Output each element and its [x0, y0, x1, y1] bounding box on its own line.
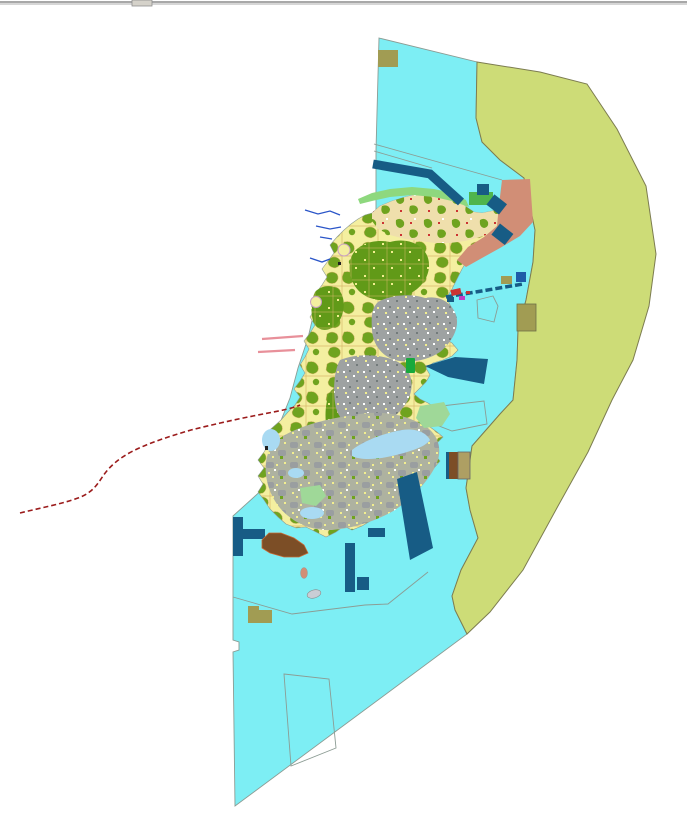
khaki-site-small	[501, 276, 512, 284]
royal-blue-square	[516, 272, 526, 282]
shallow-pool	[288, 468, 304, 478]
shallow-pool	[262, 429, 280, 451]
coast-mark	[338, 262, 341, 265]
coast-cove-outline	[338, 244, 350, 256]
khaki-site-north	[378, 50, 398, 67]
box-site-brown	[449, 452, 458, 479]
splitter-handle[interactable]	[132, 0, 152, 6]
map-canvas[interactable]	[0, 0, 687, 821]
south-pier	[345, 543, 355, 592]
magenta-marker	[459, 296, 465, 300]
coast-mark	[265, 446, 268, 450]
bright-green-parcel	[406, 358, 415, 373]
red-marker	[466, 291, 470, 294]
southwest-jetty-arm	[243, 529, 265, 539]
divider-line-light	[0, 3, 687, 5]
box-site-tan	[458, 452, 470, 479]
southwest-jetty	[233, 517, 243, 556]
south-navy-square	[357, 577, 369, 590]
map-viewport	[0, 0, 687, 821]
navy-marker	[447, 297, 454, 302]
coast-cove-outline	[311, 297, 322, 308]
salmon-islet	[301, 568, 308, 579]
navy-parcel	[477, 184, 489, 195]
khaki-site-east	[517, 304, 536, 331]
divider-line-dark	[0, 1, 687, 3]
south-navy-rect	[368, 528, 385, 537]
shallow-pool	[300, 507, 324, 519]
